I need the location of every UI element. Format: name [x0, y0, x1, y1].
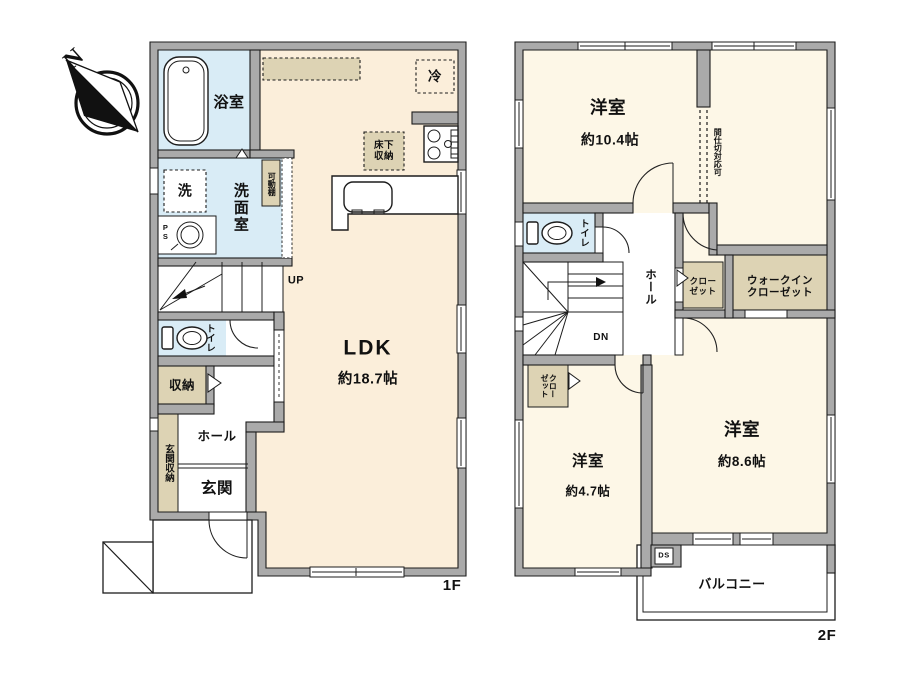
label-room-b: 洋室	[572, 453, 604, 471]
label-room-b-size: 約4.7帖	[566, 485, 611, 500]
label-floor2: 2F	[818, 627, 837, 645]
label-refrigerator: 冷	[428, 69, 442, 85]
label-washroom: 洗面室	[232, 183, 248, 234]
floorplan-page: N 浴室 洗 洗面室 可動棚 PS UP トイレ 収納 玄関収納 ホール 玄関 …	[0, 0, 920, 690]
hall-room-c-door-gap	[675, 318, 683, 355]
open-shelf	[282, 158, 292, 258]
entrance-door-gap	[209, 512, 247, 520]
label-hall1: ホール	[197, 430, 236, 445]
label-floor1: 1F	[443, 577, 462, 595]
toilet1-bowl	[177, 327, 207, 349]
label-stairs-down: DN	[593, 332, 608, 344]
label-hall2: ホール	[644, 268, 656, 306]
label-room-a-size: 約10.4帖	[581, 132, 639, 149]
toilet-nook	[226, 320, 274, 356]
label-toilet2: トイレ	[578, 219, 588, 248]
label-balcony: バルコニー	[698, 576, 765, 591]
label-room-c: 洋室	[724, 420, 760, 441]
label-stairs-up: UP	[288, 275, 304, 288]
storage-nook	[214, 366, 274, 406]
floor2-plan	[515, 42, 835, 620]
label-bathroom: 浴室	[213, 94, 244, 112]
label-washer: 洗	[178, 183, 193, 200]
label-room-c-size: 約8.6帖	[718, 454, 766, 470]
label-room-a: 洋室	[590, 98, 626, 119]
label-storage: 収納	[169, 379, 195, 394]
floor1-plan	[103, 42, 466, 593]
label-entrance: 玄関	[201, 480, 233, 498]
label-closet-right: クロー ゼット	[689, 276, 716, 296]
label-toilet1: トイレ	[204, 324, 214, 353]
toilet2-bowl	[542, 222, 572, 244]
label-movable-shelf: 可動棚	[267, 172, 275, 196]
label-duct-space: DS	[658, 552, 669, 561]
label-partition-note: 間仕切対応可	[713, 128, 721, 176]
label-ldk-size: 約18.7帖	[338, 371, 398, 388]
label-closet-left: クロー ゼット	[540, 374, 557, 398]
counter-shelf	[263, 58, 360, 80]
toilet2-tank	[527, 222, 538, 244]
label-walkin-closet: ウォークイン クローゼット	[747, 275, 813, 300]
toilet1-tank	[162, 327, 173, 349]
label-entrance-storage: 玄関収納	[163, 444, 173, 482]
toilet2-door-gap	[595, 227, 603, 253]
label-ldk: LDK	[343, 337, 392, 362]
kitchen-sink	[344, 182, 392, 212]
bathtub	[164, 57, 208, 145]
label-pipe-space: PS	[161, 223, 169, 241]
walkin-closet-door-gap	[745, 310, 787, 318]
label-underfloor-storage: 床下 収納	[374, 140, 394, 162]
entrance-porch	[103, 520, 252, 593]
fixtures-2f	[527, 222, 572, 244]
